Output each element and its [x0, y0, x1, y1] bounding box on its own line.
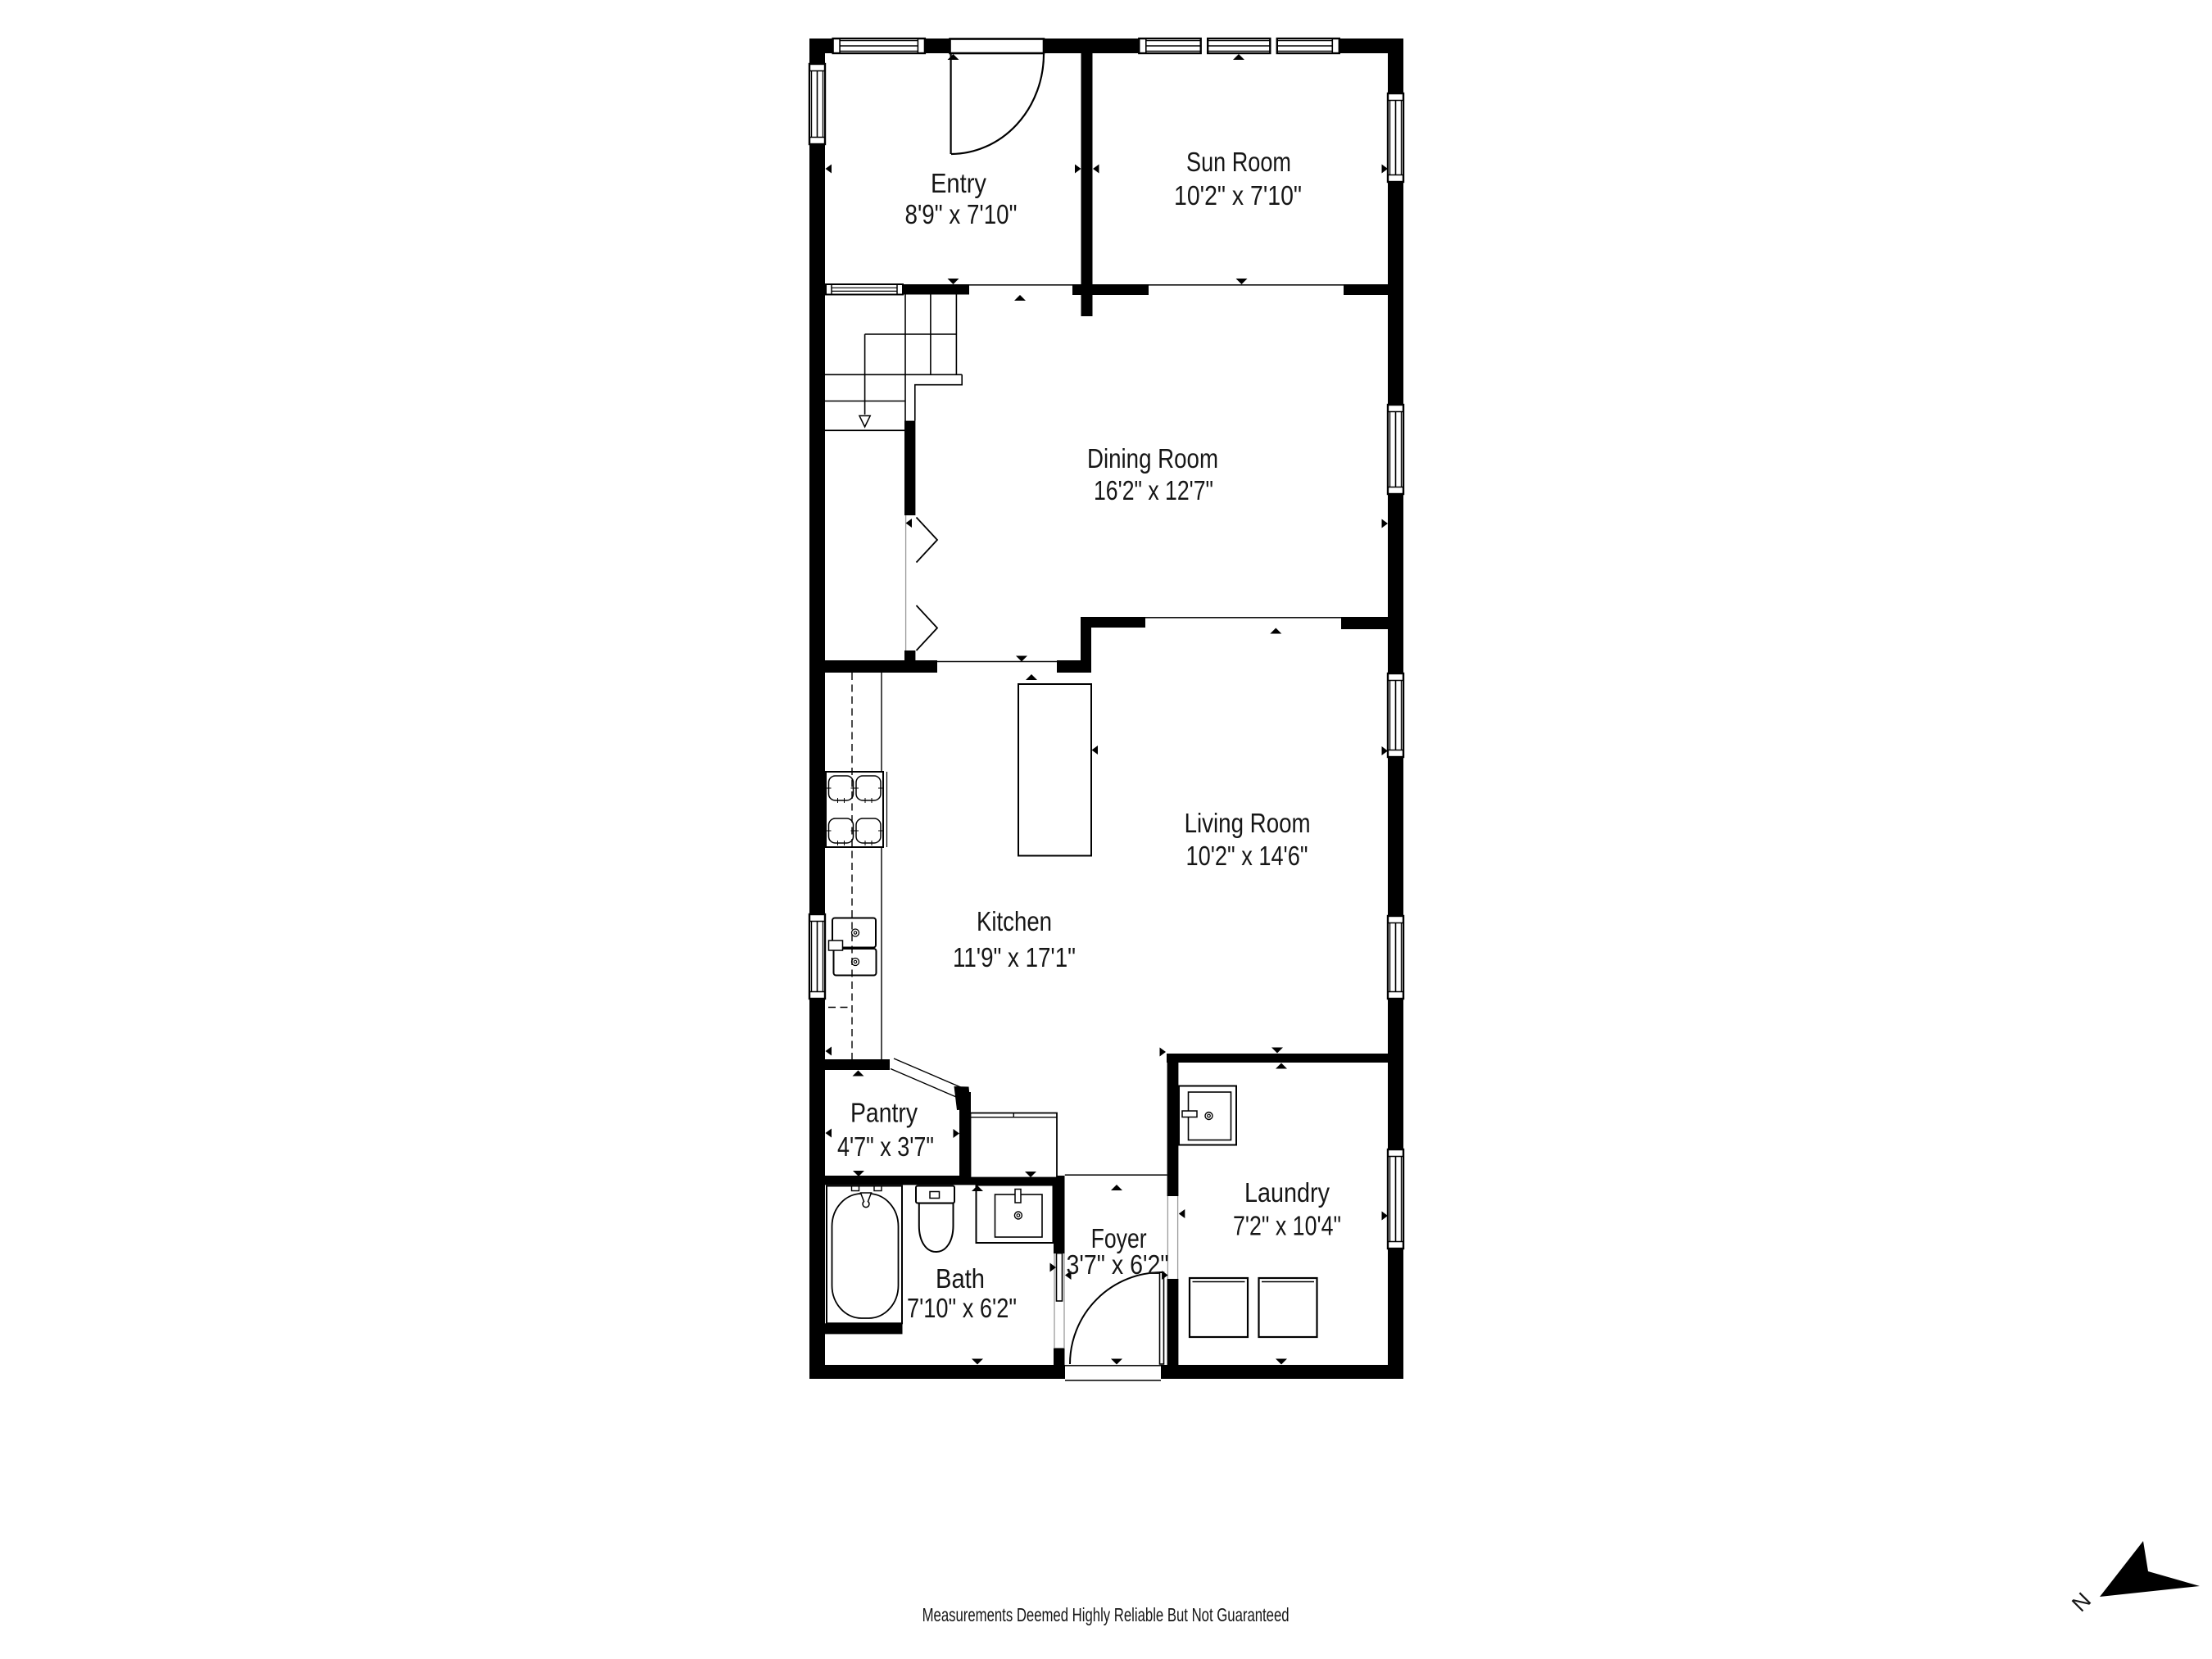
svg-text:Living Room: Living Room — [1185, 808, 1311, 838]
svg-text:Bath: Bath — [936, 1263, 985, 1294]
svg-text:7'2" x 10'4": 7'2" x 10'4" — [1233, 1211, 1341, 1241]
svg-text:10'2" x 7'10": 10'2" x 7'10" — [1174, 180, 1302, 211]
svg-text:16'2" x 12'7": 16'2" x 12'7" — [1094, 475, 1213, 505]
svg-text:10'2" x 14'6": 10'2" x 14'6" — [1186, 841, 1308, 871]
svg-text:7'10" x 6'2": 7'10" x 6'2" — [907, 1293, 1017, 1323]
svg-text:Laundry: Laundry — [1244, 1177, 1330, 1208]
svg-text:4'7" x 3'7": 4'7" x 3'7" — [837, 1131, 934, 1162]
svg-text:Pantry: Pantry — [850, 1098, 918, 1128]
svg-text:Entry: Entry — [931, 168, 986, 198]
svg-text:3'7" x 6'2": 3'7" x 6'2" — [1067, 1249, 1169, 1280]
svg-text:Measurements Deemed Highly Rel: Measurements Deemed Highly Reliable But … — [922, 1604, 1290, 1625]
svg-text:8'9" x 7'10": 8'9" x 7'10" — [905, 199, 1018, 229]
svg-text:Sun Room: Sun Room — [1186, 147, 1291, 177]
svg-text:Kitchen: Kitchen — [977, 906, 1052, 936]
svg-text:Dining Room: Dining Room — [1087, 443, 1218, 474]
svg-text:11'9" x 17'1": 11'9" x 17'1" — [953, 942, 1076, 972]
